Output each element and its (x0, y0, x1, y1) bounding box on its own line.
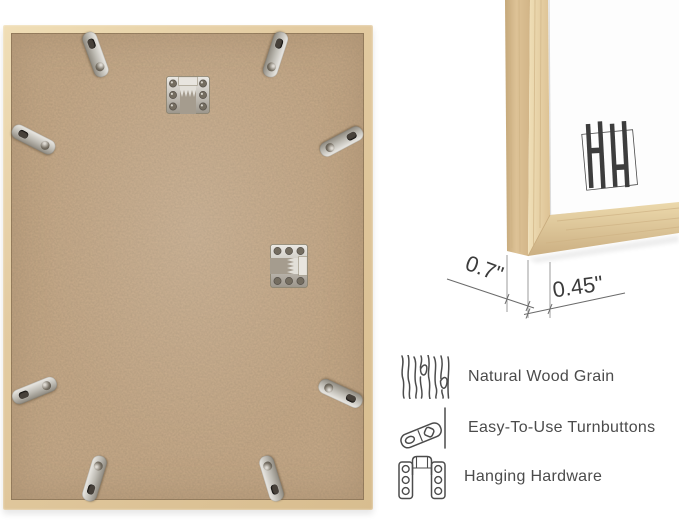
face-width-dimension-label: 0.45" (551, 271, 605, 303)
feature-row-turnbuttons: Easy-To-Use Turnbuttons (398, 407, 655, 449)
turnbutton-icon (398, 407, 450, 449)
depth-dimension-label: 0.7" (462, 250, 507, 287)
sawtooth-hanger-side-icon (270, 244, 308, 288)
frame-side-face (505, 0, 530, 256)
product-infographic: 0.7" 0.45" Natural Wood Grain (0, 0, 679, 523)
feature-label: Easy-To-Use Turnbuttons (468, 419, 655, 437)
feature-label: Hanging Hardware (464, 468, 602, 486)
feature-label: Natural Wood Grain (468, 368, 615, 386)
wood-grain-icon (398, 355, 450, 399)
extension-lines (507, 255, 550, 318)
sawtooth-hanger-icon (166, 76, 210, 114)
frame-back-view (3, 25, 373, 510)
frame-front-face (528, 0, 550, 256)
feature-row-wood-grain: Natural Wood Grain (398, 355, 615, 399)
feature-row-hanging-hardware: Hanging Hardware (398, 454, 602, 500)
frame-corner-view: 0.7" 0.45" (420, 0, 679, 330)
hanging-hardware-icon (398, 454, 446, 500)
